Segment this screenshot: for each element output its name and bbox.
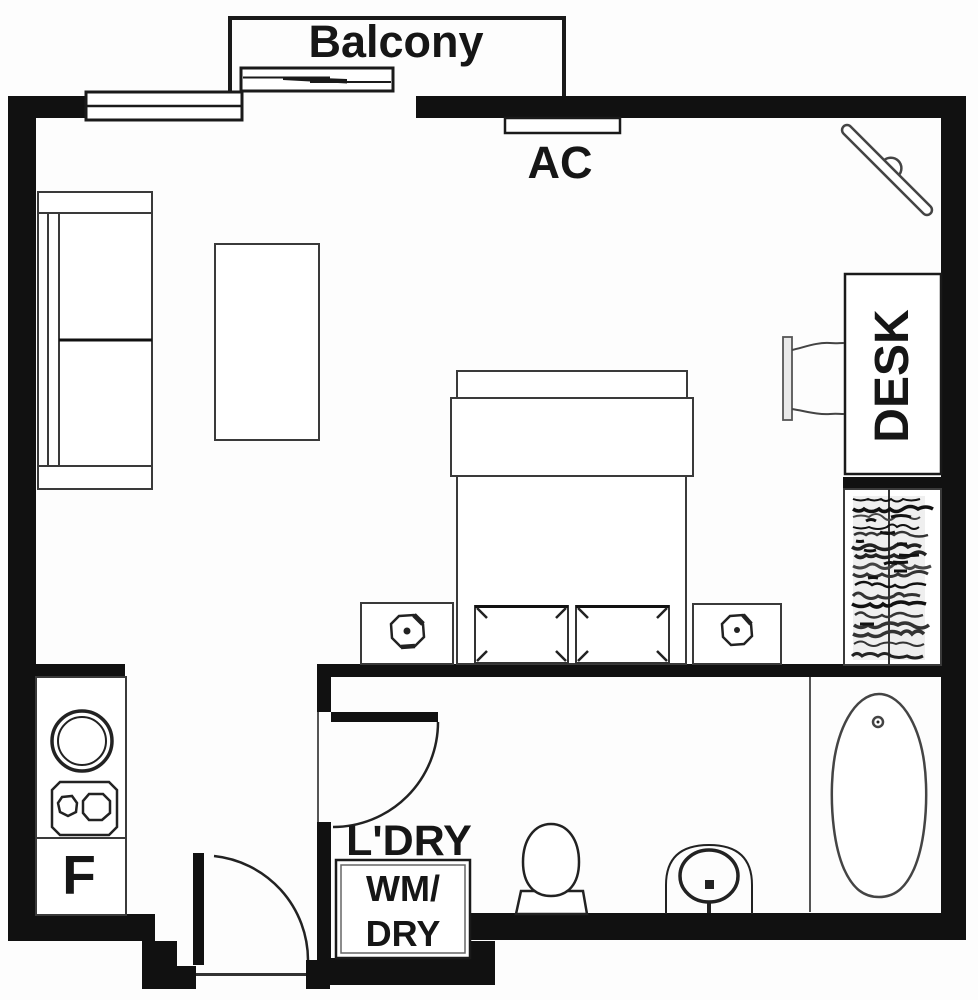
svg-text:AC: AC — [528, 137, 593, 188]
svg-text:F: F — [62, 844, 96, 906]
svg-text:WM/: WM/ — [366, 868, 440, 909]
svg-text:DESK: DESK — [866, 309, 919, 443]
svg-text:DRY: DRY — [366, 913, 441, 954]
svg-text:Balcony: Balcony — [308, 16, 483, 67]
svg-text:L'DRY: L'DRY — [346, 817, 472, 865]
